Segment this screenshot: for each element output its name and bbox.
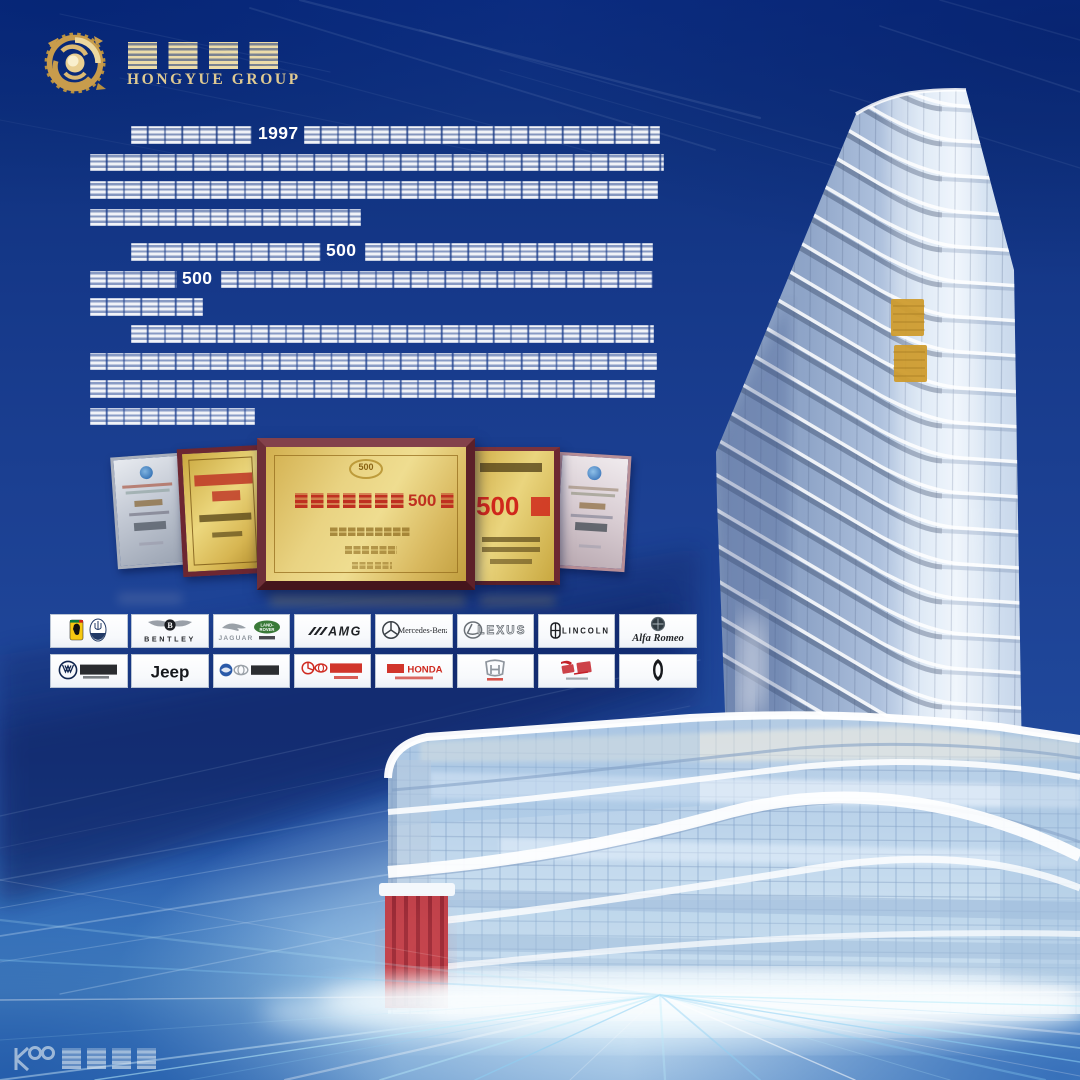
svg-text:BENTLEY: BENTLEY	[144, 634, 196, 643]
svg-text:JAGUAR: JAGUAR	[219, 635, 254, 642]
svg-text:LEXUS: LEXUS	[478, 625, 527, 637]
svg-text:Alfa Romeo: Alfa Romeo	[631, 633, 684, 644]
svg-text:ROVER: ROVER	[260, 627, 275, 632]
svg-text:AMG: AMG	[327, 624, 362, 638]
svg-text:LINCOLN: LINCOLN	[562, 626, 610, 635]
svg-text:B: B	[167, 621, 173, 630]
svg-text:Mercedes-Benz: Mercedes-Benz	[398, 626, 447, 635]
svg-text:HONDA: HONDA	[407, 665, 442, 676]
svg-text:Jeep: Jeep	[151, 663, 190, 682]
